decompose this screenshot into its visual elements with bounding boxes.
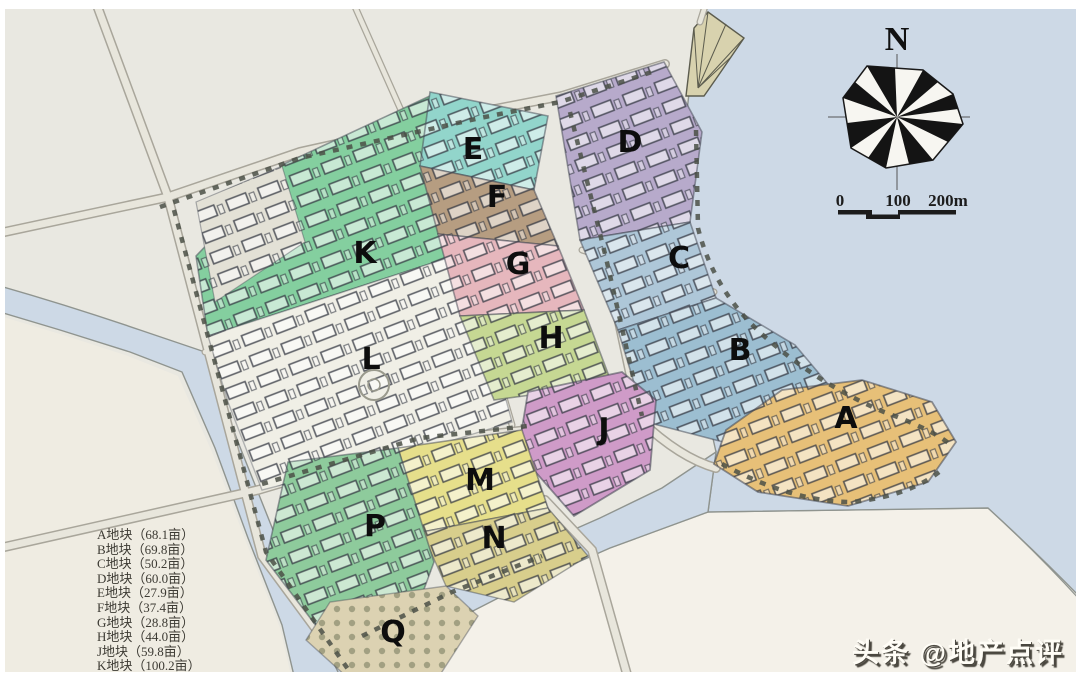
parcel-label-B: B: [729, 333, 752, 368]
watermark: 头条 @地产点评: [852, 631, 1064, 670]
legend-item: H地块（44.0亩）: [97, 630, 201, 645]
parcel-label-A: A: [834, 401, 858, 436]
legend: A地块（68.1亩） B地块（69.8亩） C地块（50.2亩） D地块（60.…: [97, 528, 201, 674]
site-plan-map: A B C D E F G H J K L M N P Q N 0: [0, 0, 1080, 680]
legend-item: D地块（60.0亩）: [97, 572, 201, 587]
parcel-label-L: L: [361, 342, 380, 377]
scale-tick-100: 100: [885, 191, 911, 210]
legend-item: E地块（27.9亩）: [97, 586, 201, 601]
parcel-label-D: D: [618, 125, 643, 160]
parcel-label-G: G: [506, 247, 531, 282]
parcel-label-E: E: [463, 132, 484, 167]
parcel-label-C: C: [668, 241, 690, 276]
legend-item: B地块（69.8亩）: [97, 543, 201, 558]
parcel-label-H: H: [538, 321, 563, 356]
scale-tick-0: 0: [836, 191, 845, 210]
parcel-label-J: J: [596, 412, 609, 447]
parcel-label-N: N: [481, 521, 506, 556]
compass-north-label: N: [885, 21, 910, 58]
parcel-label-P: P: [364, 509, 386, 544]
legend-item: C地块（50.2亩）: [97, 557, 201, 572]
legend-item: A地块（68.1亩）: [97, 528, 201, 543]
legend-item: G地块（28.8亩）: [97, 616, 201, 631]
parcel-label-K: K: [353, 236, 378, 271]
scale-tick-200m: 200m: [928, 191, 968, 210]
legend-item: F地块（37.4亩）: [97, 601, 201, 616]
parcel-label-Q: Q: [380, 615, 406, 650]
legend-item: K地块（100.2亩）: [97, 659, 201, 674]
legend-item: J地块（59.8亩）: [97, 645, 201, 660]
parcel-label-M: M: [465, 463, 495, 498]
parcel-label-F: F: [487, 180, 508, 215]
